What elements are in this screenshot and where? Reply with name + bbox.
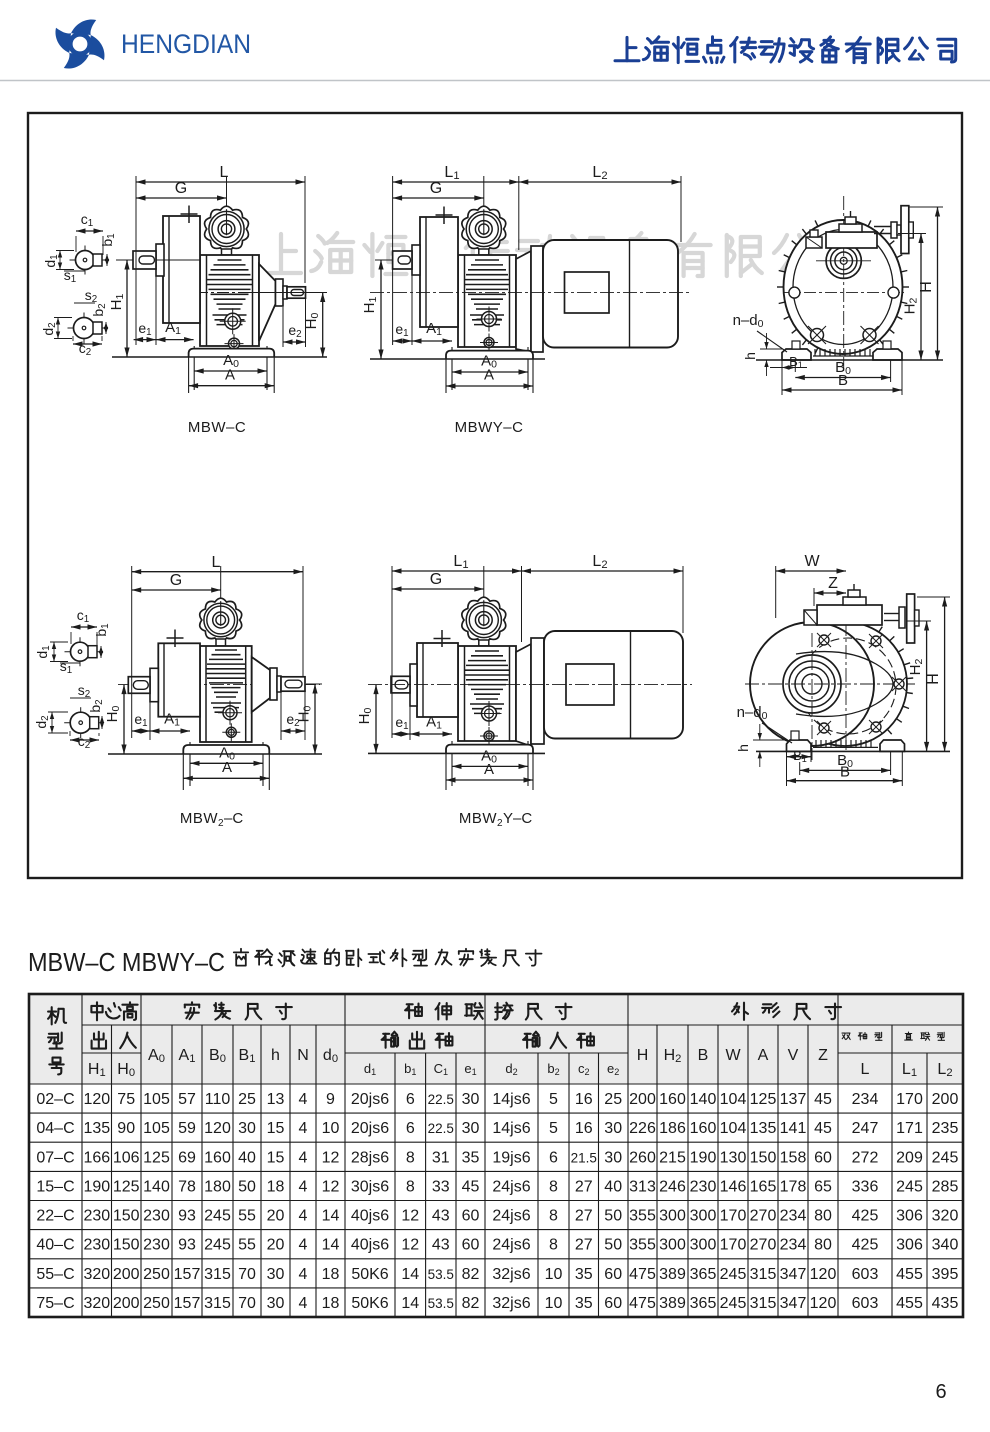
svg-text:16: 16	[575, 1120, 593, 1137]
svg-text:8: 8	[549, 1237, 558, 1254]
svg-text:150: 150	[750, 1149, 777, 1166]
svg-text:455: 455	[896, 1295, 923, 1312]
svg-text:82: 82	[462, 1266, 480, 1283]
svg-text:18: 18	[322, 1295, 340, 1312]
svg-text:70: 70	[238, 1295, 256, 1312]
svg-text:106: 106	[113, 1149, 140, 1166]
svg-text:135: 135	[83, 1120, 110, 1137]
svg-text:02–C: 02–C	[36, 1091, 74, 1108]
svg-text:475: 475	[629, 1295, 656, 1312]
svg-text:110: 110	[205, 1091, 231, 1108]
svg-text:347: 347	[780, 1295, 807, 1312]
svg-text:HENGDIAN: HENGDIAN	[121, 29, 251, 59]
svg-text:MBW–C: MBW–C	[188, 419, 246, 436]
svg-text:30: 30	[604, 1120, 622, 1137]
svg-text:245: 245	[204, 1208, 231, 1225]
svg-text:8: 8	[406, 1149, 415, 1166]
svg-text:L: L	[220, 164, 229, 181]
svg-text:209: 209	[896, 1149, 923, 1166]
svg-text:W: W	[804, 553, 820, 570]
svg-text:35: 35	[462, 1149, 480, 1166]
svg-text:43: 43	[432, 1237, 450, 1254]
svg-text:166: 166	[83, 1149, 110, 1166]
svg-text:20js6: 20js6	[351, 1091, 389, 1108]
svg-text:12: 12	[322, 1149, 340, 1166]
svg-text:57: 57	[178, 1091, 196, 1108]
svg-text:33: 33	[432, 1178, 450, 1195]
svg-text:MBWY–C: MBWY–C	[455, 419, 524, 436]
svg-text:40: 40	[604, 1178, 622, 1195]
svg-text:35: 35	[575, 1295, 593, 1312]
svg-text:157: 157	[174, 1266, 201, 1283]
svg-text:300: 300	[690, 1237, 717, 1254]
svg-text:270: 270	[750, 1208, 777, 1225]
svg-text:A: A	[484, 367, 494, 384]
svg-text:165: 165	[750, 1178, 777, 1195]
svg-text:60: 60	[462, 1237, 480, 1254]
svg-text:158: 158	[780, 1149, 807, 1166]
svg-text:246: 246	[659, 1178, 686, 1195]
svg-text:270: 270	[750, 1237, 777, 1254]
svg-text:320: 320	[932, 1208, 959, 1225]
svg-text:55: 55	[238, 1237, 256, 1254]
svg-text:313: 313	[629, 1178, 656, 1195]
svg-text:4: 4	[299, 1295, 308, 1312]
svg-text:315: 315	[204, 1266, 231, 1283]
svg-text:32js6: 32js6	[492, 1266, 530, 1283]
svg-text:60: 60	[604, 1266, 622, 1283]
svg-text:425: 425	[852, 1208, 879, 1225]
svg-text:250: 250	[143, 1295, 170, 1312]
svg-text:25: 25	[604, 1091, 622, 1108]
svg-text:75: 75	[117, 1091, 135, 1108]
svg-text:4: 4	[299, 1208, 308, 1225]
svg-text:A: A	[484, 761, 494, 778]
svg-text:171: 171	[896, 1120, 923, 1137]
svg-text:30: 30	[462, 1120, 480, 1137]
svg-text:8: 8	[549, 1208, 558, 1225]
svg-text:15–C: 15–C	[36, 1178, 74, 1195]
svg-text:347: 347	[780, 1266, 807, 1283]
svg-text:G: G	[430, 180, 442, 197]
svg-text:L: L	[861, 1061, 870, 1078]
svg-text:230: 230	[143, 1237, 170, 1254]
svg-text:272: 272	[852, 1149, 879, 1166]
svg-text:340: 340	[932, 1237, 959, 1254]
svg-text:215: 215	[659, 1149, 686, 1166]
svg-text:B: B	[838, 372, 848, 389]
svg-text:MBW: MBW	[459, 810, 498, 827]
svg-text:35: 35	[575, 1266, 593, 1283]
svg-text:389: 389	[659, 1295, 686, 1312]
svg-text:22.5: 22.5	[428, 1121, 454, 1136]
svg-text:178: 178	[780, 1178, 807, 1195]
svg-text:234: 234	[780, 1237, 807, 1254]
svg-text:170: 170	[720, 1208, 747, 1225]
svg-text:160: 160	[659, 1091, 686, 1108]
svg-text:315: 315	[750, 1266, 777, 1283]
svg-text:200: 200	[113, 1295, 140, 1312]
svg-text:53.5: 53.5	[428, 1267, 454, 1282]
svg-text:4: 4	[299, 1091, 308, 1108]
svg-text:140: 140	[690, 1091, 717, 1108]
svg-text:A: A	[222, 759, 232, 776]
svg-text:300: 300	[659, 1237, 686, 1254]
svg-text:V: V	[788, 1047, 799, 1064]
svg-text:31: 31	[432, 1149, 450, 1166]
svg-text:24js6: 24js6	[492, 1208, 530, 1225]
svg-text:245: 245	[720, 1295, 747, 1312]
svg-text:82: 82	[462, 1295, 480, 1312]
svg-text:10: 10	[322, 1120, 340, 1137]
svg-text:250: 250	[143, 1266, 170, 1283]
svg-text:G: G	[175, 180, 187, 197]
svg-text:70: 70	[238, 1266, 256, 1283]
svg-text:90: 90	[117, 1120, 135, 1137]
svg-text:Z: Z	[818, 1047, 828, 1064]
svg-text:235: 235	[932, 1120, 959, 1137]
svg-text:336: 336	[852, 1178, 879, 1195]
svg-text:55: 55	[238, 1208, 256, 1225]
svg-text:315: 315	[204, 1295, 231, 1312]
svg-text:Z: Z	[828, 575, 838, 592]
svg-text:230: 230	[83, 1208, 110, 1225]
svg-text:170: 170	[720, 1237, 747, 1254]
svg-text:18: 18	[322, 1266, 340, 1283]
svg-text:200: 200	[932, 1091, 959, 1108]
svg-text:Y–C: Y–C	[503, 810, 532, 827]
svg-text:435: 435	[932, 1295, 959, 1312]
svg-text:300: 300	[690, 1208, 717, 1225]
svg-text:6: 6	[935, 1381, 946, 1403]
svg-text:–C: –C	[224, 810, 243, 827]
svg-text:N: N	[297, 1047, 309, 1064]
svg-text:186: 186	[659, 1120, 686, 1137]
svg-text:93: 93	[178, 1208, 196, 1225]
svg-text:93: 93	[178, 1237, 196, 1254]
svg-text:4: 4	[299, 1149, 308, 1166]
svg-text:04–C: 04–C	[36, 1120, 74, 1137]
svg-text:14: 14	[401, 1295, 419, 1312]
svg-text:245: 245	[896, 1178, 923, 1195]
svg-text:G: G	[170, 572, 182, 589]
svg-text:40js6: 40js6	[351, 1208, 389, 1225]
svg-text:230: 230	[143, 1208, 170, 1225]
svg-text:W: W	[725, 1047, 741, 1064]
svg-text:07–C: 07–C	[36, 1149, 74, 1166]
svg-text:15: 15	[267, 1120, 285, 1137]
svg-text:25: 25	[238, 1091, 256, 1108]
svg-text:14: 14	[322, 1237, 340, 1254]
svg-text:300: 300	[659, 1208, 686, 1225]
svg-text:120: 120	[204, 1120, 231, 1137]
svg-text:12: 12	[322, 1178, 340, 1195]
svg-text:20: 20	[267, 1237, 285, 1254]
svg-text:141: 141	[780, 1120, 807, 1137]
svg-text:13: 13	[267, 1091, 285, 1108]
svg-text:234: 234	[780, 1208, 807, 1225]
svg-text:8: 8	[406, 1178, 415, 1195]
svg-text:230: 230	[690, 1178, 717, 1195]
svg-text:395: 395	[932, 1266, 959, 1283]
svg-text:30js6: 30js6	[351, 1178, 389, 1195]
svg-text:40js6: 40js6	[351, 1237, 389, 1254]
svg-text:60: 60	[604, 1295, 622, 1312]
svg-text:19js6: 19js6	[492, 1149, 530, 1166]
svg-text:50K6: 50K6	[351, 1295, 388, 1312]
svg-text:306: 306	[896, 1208, 923, 1225]
svg-text:105: 105	[143, 1120, 170, 1137]
svg-text:60: 60	[814, 1149, 832, 1166]
svg-text:50: 50	[604, 1237, 622, 1254]
svg-text:230: 230	[83, 1237, 110, 1254]
svg-text:12: 12	[401, 1208, 419, 1225]
svg-text:40: 40	[238, 1149, 256, 1166]
svg-text:355: 355	[629, 1208, 656, 1225]
svg-text:22–C: 22–C	[36, 1208, 74, 1225]
svg-text:14js6: 14js6	[492, 1120, 530, 1137]
svg-text:245: 245	[204, 1237, 231, 1254]
svg-text:A: A	[225, 367, 235, 384]
svg-text:245: 245	[720, 1266, 747, 1283]
svg-text:50: 50	[604, 1208, 622, 1225]
svg-text:4: 4	[299, 1120, 308, 1137]
svg-text:B: B	[840, 764, 850, 781]
svg-text:603: 603	[852, 1266, 879, 1283]
svg-text:425: 425	[852, 1237, 879, 1254]
svg-text:104: 104	[720, 1091, 747, 1108]
svg-text:5: 5	[549, 1091, 558, 1108]
svg-text:5: 5	[549, 1120, 558, 1137]
svg-text:190: 190	[83, 1178, 110, 1195]
svg-text:226: 226	[629, 1120, 656, 1137]
svg-text:306: 306	[896, 1237, 923, 1254]
svg-text:320: 320	[83, 1295, 110, 1312]
svg-text:27: 27	[575, 1208, 593, 1225]
svg-text:28js6: 28js6	[351, 1149, 389, 1166]
svg-text:120: 120	[83, 1091, 110, 1108]
svg-text:285: 285	[932, 1178, 959, 1195]
svg-text:389: 389	[659, 1266, 686, 1283]
svg-text:69: 69	[178, 1149, 196, 1166]
svg-text:4: 4	[299, 1266, 308, 1283]
svg-text:104: 104	[720, 1120, 747, 1137]
svg-text:455: 455	[896, 1266, 923, 1283]
svg-text:14: 14	[401, 1266, 419, 1283]
svg-text:14js6: 14js6	[492, 1091, 530, 1108]
svg-text:120: 120	[810, 1295, 837, 1312]
svg-text:B: B	[698, 1047, 709, 1064]
svg-text:45: 45	[814, 1120, 832, 1137]
svg-text:30: 30	[238, 1120, 256, 1137]
svg-text:190: 190	[690, 1149, 717, 1166]
svg-text:8: 8	[549, 1178, 558, 1195]
svg-text:247: 247	[852, 1120, 879, 1137]
svg-text:h: h	[271, 1047, 280, 1064]
svg-text:27: 27	[575, 1178, 593, 1195]
svg-text:16: 16	[575, 1091, 593, 1108]
svg-text:55–C: 55–C	[36, 1266, 74, 1283]
svg-text:80: 80	[814, 1237, 832, 1254]
svg-text:53.5: 53.5	[428, 1296, 454, 1311]
svg-text:157: 157	[174, 1295, 201, 1312]
svg-text:15: 15	[267, 1149, 285, 1166]
svg-text:320: 320	[83, 1266, 110, 1283]
svg-text:6: 6	[549, 1149, 558, 1166]
svg-text:h: h	[742, 352, 758, 360]
svg-text:60: 60	[462, 1208, 480, 1225]
svg-text:200: 200	[629, 1091, 656, 1108]
svg-text:h: h	[735, 744, 751, 752]
svg-text:150: 150	[113, 1237, 140, 1254]
svg-text:245: 245	[932, 1149, 959, 1166]
svg-text:603: 603	[852, 1295, 879, 1312]
svg-text:4: 4	[299, 1237, 308, 1254]
svg-text:43: 43	[432, 1208, 450, 1225]
svg-text:18: 18	[267, 1178, 285, 1195]
svg-text:355: 355	[629, 1237, 656, 1254]
svg-text:22.5: 22.5	[428, 1092, 454, 1107]
svg-text:260: 260	[629, 1149, 656, 1166]
svg-text:40–C: 40–C	[36, 1237, 74, 1254]
svg-text:24js6: 24js6	[492, 1178, 530, 1195]
svg-text:50K6: 50K6	[351, 1266, 388, 1283]
svg-text:H: H	[925, 673, 942, 685]
svg-text:27: 27	[575, 1237, 593, 1254]
svg-text:30: 30	[462, 1091, 480, 1108]
svg-text:140: 140	[143, 1178, 170, 1195]
svg-text:12: 12	[401, 1237, 419, 1254]
svg-text:315: 315	[750, 1295, 777, 1312]
svg-text:A: A	[758, 1047, 769, 1064]
svg-text:20: 20	[267, 1208, 285, 1225]
svg-text:125: 125	[113, 1178, 140, 1195]
svg-text:21.5: 21.5	[571, 1150, 597, 1165]
svg-text:45: 45	[814, 1091, 832, 1108]
svg-text:32js6: 32js6	[492, 1295, 530, 1312]
svg-text:150: 150	[113, 1208, 140, 1225]
svg-text:80: 80	[814, 1208, 832, 1225]
svg-text:45: 45	[462, 1178, 480, 1195]
svg-text:170: 170	[896, 1091, 923, 1108]
svg-text:135: 135	[750, 1120, 777, 1137]
svg-text:160: 160	[204, 1149, 231, 1166]
svg-text:125: 125	[750, 1091, 777, 1108]
svg-text:59: 59	[178, 1120, 196, 1137]
svg-text:160: 160	[690, 1120, 717, 1137]
svg-text:65: 65	[814, 1178, 832, 1195]
svg-text:30: 30	[267, 1295, 285, 1312]
svg-text:30: 30	[604, 1149, 622, 1166]
svg-text:14: 14	[322, 1208, 340, 1225]
svg-text:L: L	[212, 554, 221, 571]
svg-text:475: 475	[629, 1266, 656, 1283]
svg-text:146: 146	[720, 1178, 747, 1195]
svg-text:234: 234	[852, 1091, 879, 1108]
svg-text:365: 365	[690, 1295, 717, 1312]
svg-text:125: 125	[143, 1149, 170, 1166]
svg-text:78: 78	[178, 1178, 196, 1195]
svg-text:137: 137	[780, 1091, 807, 1108]
svg-text:H: H	[637, 1047, 649, 1064]
svg-text:6: 6	[406, 1120, 415, 1137]
svg-text:10: 10	[545, 1266, 563, 1283]
svg-text:130: 130	[720, 1149, 747, 1166]
svg-text:30: 30	[267, 1266, 285, 1283]
svg-text:180: 180	[204, 1178, 231, 1195]
svg-text:200: 200	[113, 1266, 140, 1283]
svg-text:365: 365	[690, 1266, 717, 1283]
svg-text:9: 9	[326, 1091, 335, 1108]
svg-text:24js6: 24js6	[492, 1237, 530, 1254]
svg-text:6: 6	[406, 1091, 415, 1108]
svg-text:50: 50	[238, 1178, 256, 1195]
svg-text:75–C: 75–C	[36, 1295, 74, 1312]
svg-text:105: 105	[143, 1091, 170, 1108]
svg-text:MBW: MBW	[180, 810, 219, 827]
svg-text:4: 4	[299, 1178, 308, 1195]
svg-text:G: G	[430, 571, 442, 588]
svg-text:10: 10	[545, 1295, 563, 1312]
svg-text:MBW–C MBWY–C: MBW–C MBWY–C	[28, 947, 225, 977]
svg-text:20js6: 20js6	[351, 1120, 389, 1137]
svg-text:120: 120	[810, 1266, 837, 1283]
